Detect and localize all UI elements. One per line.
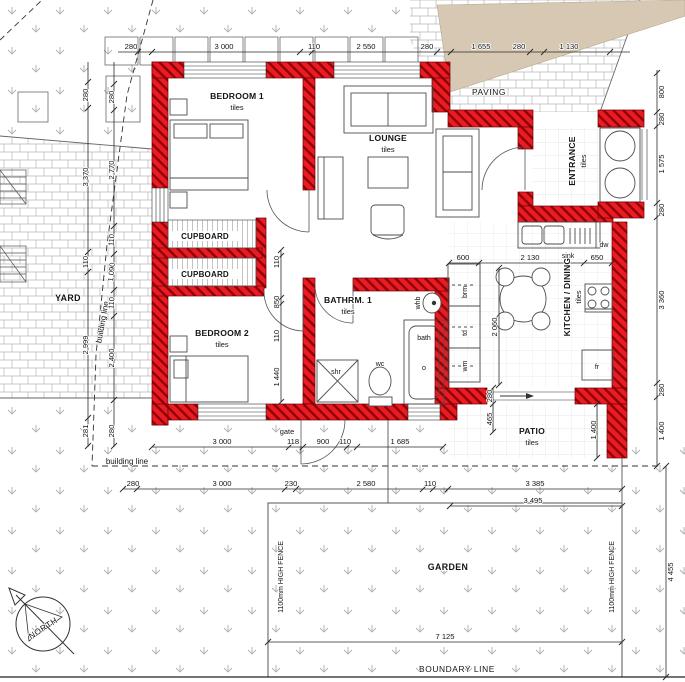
grass-garden-area — [152, 425, 685, 682]
dim-label: 280 — [657, 113, 666, 126]
dim-label: 1 130 — [559, 42, 578, 51]
dim-label: 2 130 — [520, 253, 539, 262]
dim-label: 230 — [285, 479, 298, 488]
room-label-lounge: LOUNGE — [369, 133, 407, 143]
dim-label: 3 495 — [523, 496, 542, 505]
bath-o-label: o — [422, 365, 426, 372]
room-label-kitchen: KITCHEN / DINING — [562, 258, 572, 337]
dim-label: 110 — [272, 256, 281, 268]
wc-label: wc — [375, 361, 385, 368]
front-door-swing — [482, 147, 525, 190]
dim-label: 280 — [513, 42, 526, 51]
dim-label: 3 000 — [212, 437, 231, 446]
finish-bedroom2: tiles — [215, 340, 228, 349]
grass-bottom-left — [0, 398, 152, 682]
floor-plan-drawing: NORTH BEDROOM 1 tiles BEDROOM 2 tiles LO… — [0, 0, 685, 682]
dim-label: 280 — [107, 91, 116, 104]
sink-label: sink — [562, 253, 575, 260]
bathroom-window — [408, 404, 440, 420]
dim-label: 3 385 — [525, 479, 544, 488]
shower-icon — [317, 360, 358, 402]
bed-double — [170, 99, 248, 208]
gate-label: gate — [280, 427, 294, 436]
dim-label: 1 440 — [272, 367, 281, 386]
dim-label: 280 — [127, 479, 140, 488]
dim-label: 110 — [308, 42, 320, 51]
dim-label: 3 370 — [81, 167, 90, 186]
dim-label: 1 655 — [471, 42, 490, 51]
dim-label: 600 — [457, 253, 470, 262]
wc-icon — [369, 367, 391, 395]
dim-label: 1 400 — [589, 420, 598, 439]
dim-label: 2 060 — [490, 317, 499, 336]
shr-label: shr — [331, 369, 341, 376]
dim-label: 2 400 — [107, 348, 116, 367]
dim-label: 3 000 — [212, 479, 231, 488]
finish-entrance: tiles — [579, 154, 588, 167]
grass-top-left — [0, 36, 150, 136]
dim-label: 1 400 — [657, 421, 666, 440]
dim-label: 110 — [106, 234, 116, 247]
building-line-label-south: building line — [106, 457, 149, 466]
dim-label: 110 — [339, 437, 351, 446]
bedroom2-window — [198, 404, 266, 420]
dim-label: 650 — [591, 253, 604, 262]
dim-label: 2 999 — [81, 335, 90, 354]
fr-label: fr — [595, 364, 600, 371]
dim-label: 800 — [657, 86, 666, 99]
garden-label: GARDEN — [428, 562, 469, 572]
cupboard-label-1: CUPBOARD — [181, 232, 229, 241]
dim-label: 280 — [657, 384, 666, 397]
finish-lounge: tiles — [381, 145, 394, 154]
dim-label: 4 455 — [666, 562, 675, 581]
patio-sliding-door — [487, 392, 575, 400]
room-label-entrance: ENTRANCE — [567, 136, 577, 185]
bathroom-fittings — [317, 293, 444, 406]
finish-patio: tiles — [525, 438, 538, 447]
bedroom2-door-swing — [264, 291, 303, 331]
laundry-tubs-box — [600, 128, 640, 202]
dim-label: 110 — [81, 256, 90, 268]
dim-label: 280 — [125, 42, 138, 51]
boundary-line-label: BOUNDARY LINE — [419, 664, 495, 674]
bath-label: bath — [417, 335, 431, 342]
entrance-floor — [533, 127, 598, 206]
dim-label: 281 — [81, 425, 90, 438]
room-label-bedroom2: BEDROOM 2 — [195, 328, 249, 338]
bedroom1-door-swing — [267, 190, 309, 232]
dim-label: 2 580 — [356, 479, 375, 488]
dim-label: 1 575 — [657, 154, 666, 173]
bedroom1-window — [184, 62, 266, 78]
dim-label: 850 — [272, 296, 281, 309]
dim-label: 110 — [272, 330, 281, 342]
cupboard-label-2: CUPBOARD — [181, 270, 229, 279]
td-label: td — [462, 330, 469, 336]
lounge-window — [334, 62, 420, 78]
dim-label: 280 — [421, 42, 434, 51]
dim-label: 3 000 — [214, 42, 233, 51]
grass-top-strip — [0, 0, 410, 36]
finish-bedroom1: tiles — [230, 103, 243, 112]
room-label-bedroom1: BEDROOM 1 — [210, 91, 264, 101]
dim-label: 3 360 — [657, 290, 666, 309]
yard-label: YARD — [55, 293, 81, 303]
dim-label: 110 — [106, 297, 116, 310]
wm-label: wm — [462, 360, 469, 372]
whb-label: whb — [415, 296, 422, 310]
fence-label-left: 1100mm HIGH FENCE — [278, 541, 285, 613]
dw-label: dw — [600, 242, 610, 249]
fence-label-right: 1100mm HIGH FENCE — [609, 541, 616, 613]
dim-label: 1 090 — [106, 262, 117, 282]
room-label-patio: PATIO — [519, 426, 545, 436]
dim-label: 280 — [81, 89, 90, 102]
brm-label: brm — [462, 286, 469, 298]
bed-single — [170, 336, 248, 402]
dim-label: 110 — [424, 479, 436, 488]
finish-kitchen: tiles — [574, 290, 583, 303]
dim-label: 280 — [657, 204, 666, 217]
dim-label: 7 125 — [435, 632, 454, 641]
dim-label: 900 — [317, 437, 330, 446]
bedroom1-side-window — [152, 188, 168, 222]
dim-label: 2 550 — [356, 42, 375, 51]
dim-label: 280 — [107, 425, 116, 438]
finish-bathroom1: tiles — [341, 307, 354, 316]
room-label-bathroom1: BATHRM. 1 — [324, 295, 372, 305]
paving-label: PAVING — [472, 87, 506, 97]
hob-icon — [585, 284, 612, 312]
dim-label: 465 — [485, 413, 494, 426]
dim-label: 118 — [287, 437, 299, 446]
dim-label: 2 770 — [107, 160, 116, 179]
dim-label: 280 — [485, 390, 494, 403]
dim-label: 1 685 — [390, 437, 409, 446]
